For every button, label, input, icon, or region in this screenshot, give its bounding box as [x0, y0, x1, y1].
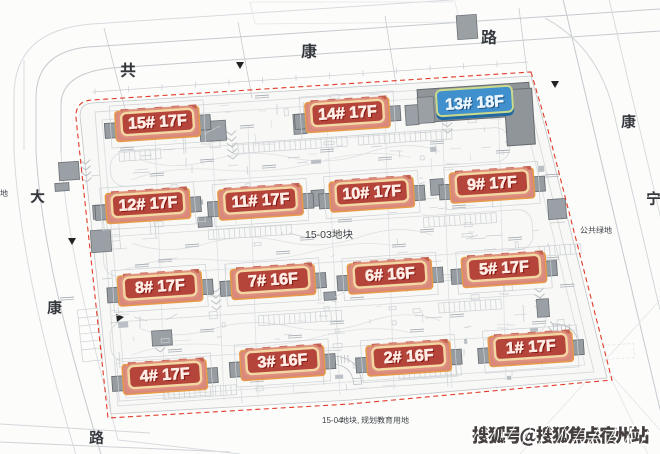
svg-text:,: ,	[357, 416, 359, 425]
svg-text:15-03: 15-03	[305, 229, 332, 241]
svg-text:1# 17F: 1# 17F	[505, 337, 556, 357]
svg-text:8# 17F: 8# 17F	[135, 277, 186, 297]
svg-text:6# 16F: 6# 16F	[365, 265, 416, 285]
svg-text:9# 17F: 9# 17F	[467, 174, 518, 194]
svg-text:5# 17F: 5# 17F	[479, 258, 530, 278]
svg-text:15-04: 15-04	[322, 416, 343, 425]
svg-text:4# 17F: 4# 17F	[139, 365, 190, 385]
svg-text:2# 16F: 2# 16F	[383, 347, 434, 367]
svg-text:7# 16F: 7# 16F	[248, 270, 299, 290]
svg-text:3# 16F: 3# 16F	[257, 351, 308, 371]
